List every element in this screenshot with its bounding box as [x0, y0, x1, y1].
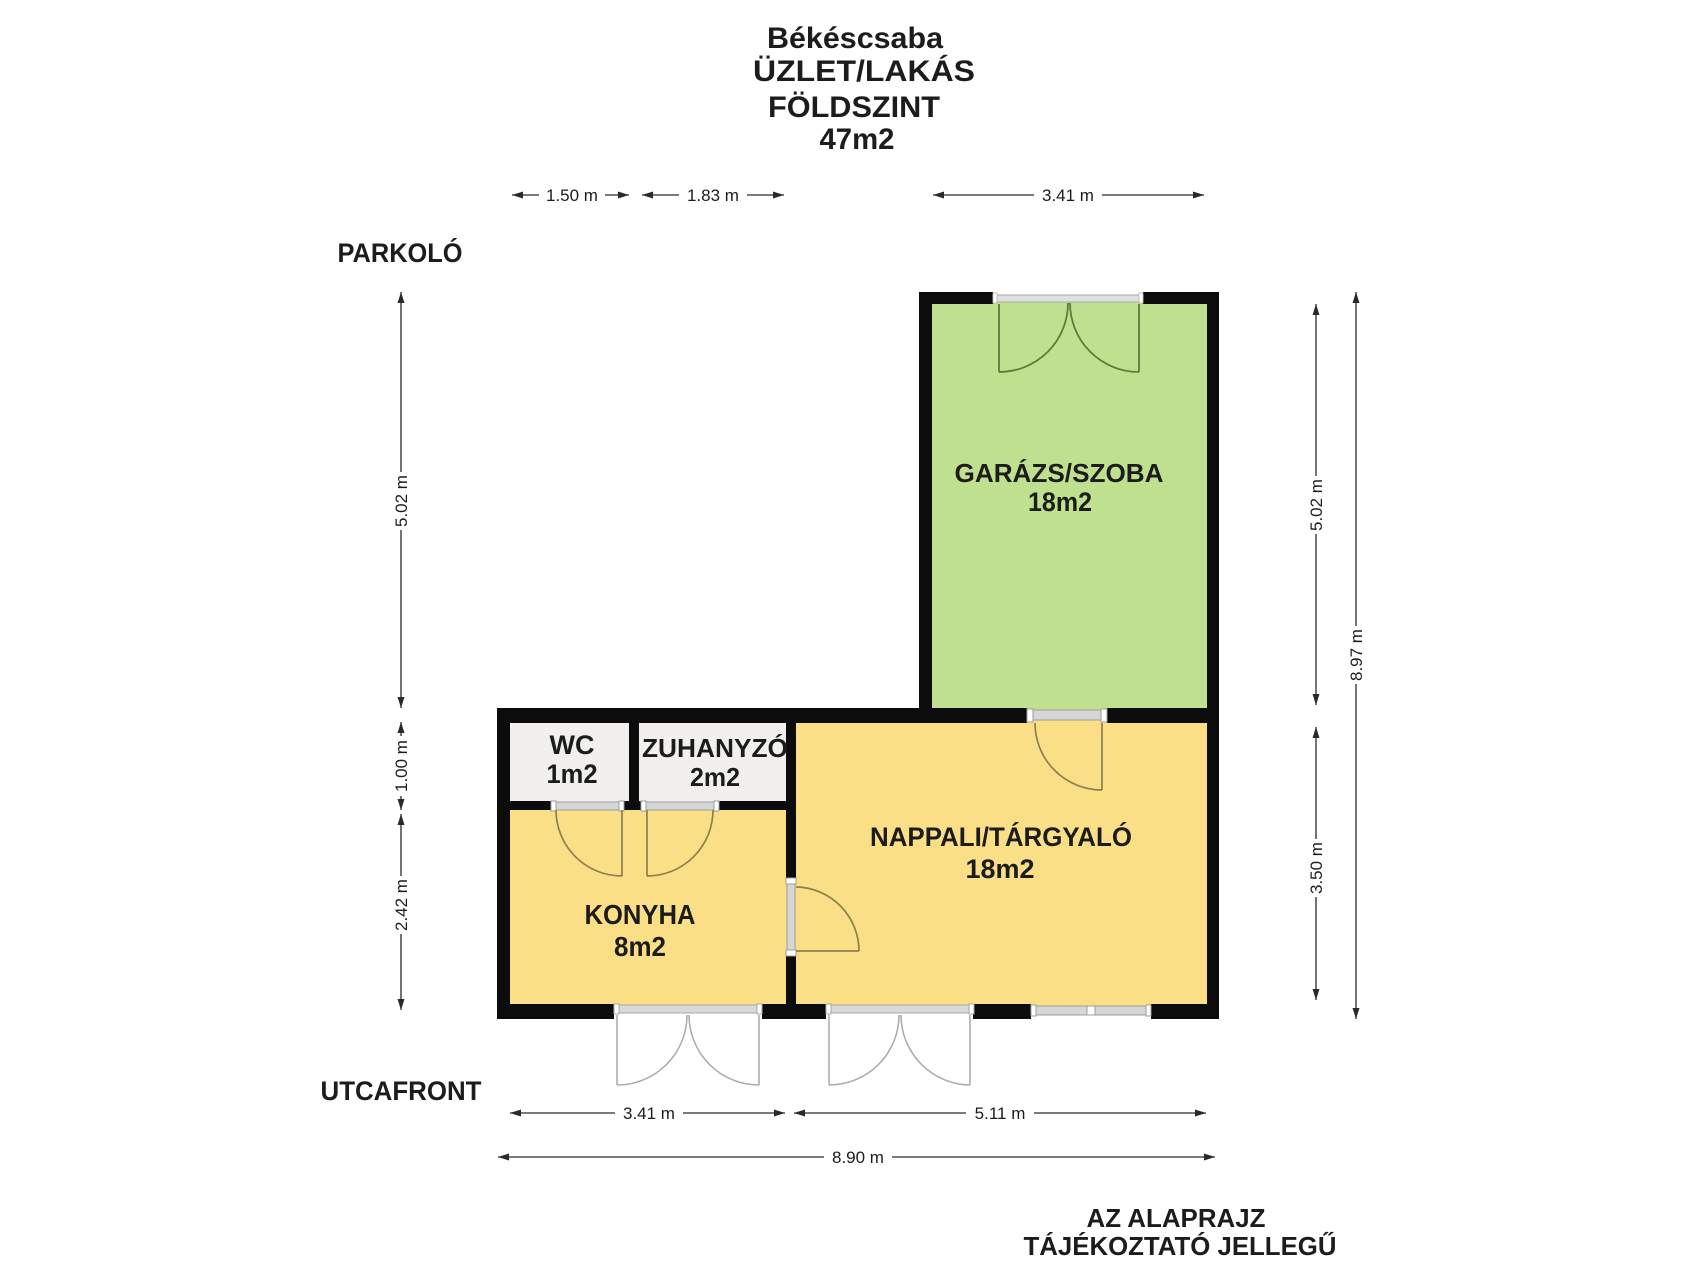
- svg-text:FÖLDSZINT: FÖLDSZINT: [768, 91, 940, 124]
- svg-text:2m2: 2m2: [690, 762, 740, 792]
- svg-text:3.50 m: 3.50 m: [1307, 842, 1326, 894]
- svg-text:WC: WC: [550, 730, 595, 760]
- svg-text:PARKOLÓ: PARKOLÓ: [338, 237, 463, 268]
- svg-text:1.50 m: 1.50 m: [546, 186, 598, 205]
- svg-text:1.00 m: 1.00 m: [392, 740, 411, 792]
- svg-text:UTCAFRONT: UTCAFRONT: [321, 1076, 482, 1106]
- svg-text:5.02 m: 5.02 m: [1307, 479, 1326, 531]
- svg-text:TÁJÉKOZTATÓ JELLEGŰ: TÁJÉKOZTATÓ JELLEGŰ: [1024, 1231, 1337, 1261]
- svg-text:8m2: 8m2: [614, 931, 666, 962]
- svg-text:5.11 m: 5.11 m: [975, 1104, 1026, 1123]
- svg-text:8.90 m: 8.90 m: [832, 1148, 884, 1167]
- svg-text:5.02 m: 5.02 m: [392, 475, 411, 527]
- svg-text:3.41 m: 3.41 m: [623, 1104, 675, 1123]
- svg-text:47m2: 47m2: [820, 123, 895, 156]
- svg-text:18m2: 18m2: [966, 854, 1035, 884]
- svg-text:ÜZLET/LAKÁS: ÜZLET/LAKÁS: [753, 54, 975, 88]
- svg-text:3.41 m: 3.41 m: [1042, 186, 1094, 205]
- svg-text:Békéscsaba: Békéscsaba: [767, 22, 943, 55]
- svg-text:8.97 m: 8.97 m: [1347, 629, 1366, 681]
- svg-text:18m2: 18m2: [1028, 487, 1092, 517]
- svg-text:AZ ALAPRAJZ: AZ ALAPRAJZ: [1087, 1203, 1266, 1233]
- svg-text:GARÁZS/SZOBA: GARÁZS/SZOBA: [955, 458, 1164, 488]
- svg-text:1m2: 1m2: [547, 759, 598, 789]
- svg-text:NAPPALI/TÁRGYALÓ: NAPPALI/TÁRGYALÓ: [870, 821, 1132, 852]
- svg-text:2.42 m: 2.42 m: [392, 879, 411, 931]
- svg-text:KONYHA: KONYHA: [585, 899, 696, 930]
- svg-text:ZUHANYZÓ: ZUHANYZÓ: [642, 733, 788, 763]
- svg-text:1.83 m: 1.83 m: [687, 186, 739, 205]
